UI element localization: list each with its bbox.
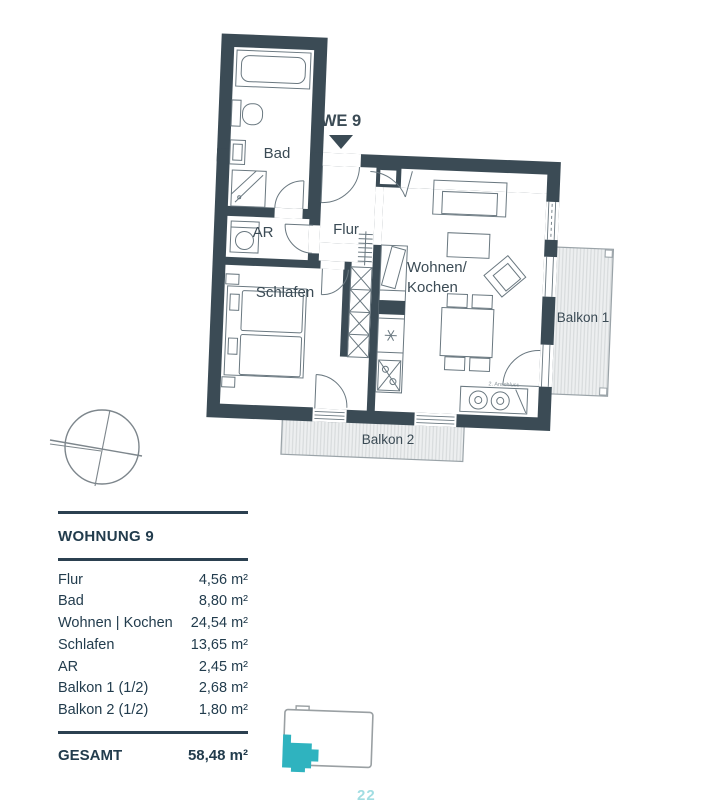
schlafen-door-opening [320,261,344,270]
entrance-arrow-icon [329,135,353,149]
row-value: 2,45 m² [199,657,248,679]
table-row: Balkon 1 (1/2) 2,68 m² [58,678,248,700]
row-value: 4,56 m² [199,570,248,592]
table-row: AR 2,45 m² [58,657,248,679]
label-wohnen-1: Wohnen/ [407,259,468,276]
entrance-opening [323,153,361,168]
row-value: 13,65 m² [191,635,248,657]
row-value: 1,80 m² [199,700,248,722]
floorplan-page: 2. Anschluss Bad AR Flur Schlafen Wohnen… [0,0,708,800]
page-number: 22 [357,787,376,804]
area-rows: Flur 4,56 m² Bad 8,80 m² Wohnen | Kochen… [58,570,248,723]
row-label: Balkon 1 (1/2) [58,678,148,700]
window-1-opening [545,202,560,240]
balcony1-door-opening [539,344,554,386]
row-label: Flur [58,570,83,592]
table-row: Schlafen 13,65 m² [58,635,248,657]
row-label: Schlafen [58,635,114,657]
key-plan [282,705,373,774]
table-row: Balkon 2 (1/2) 1,80 m² [58,700,248,722]
label-flur: Flur [333,221,359,238]
area-table: WOHNUNG 9 Flur 4,56 m² Bad 8,80 m² Wohne… [58,511,248,764]
row-label: Balkon 2 (1/2) [58,700,148,722]
north-compass-icon [50,410,142,486]
bad-door-opening [274,208,302,219]
table-rule-total [58,731,248,734]
label-balkon2: Balkon 2 [362,432,415,447]
label-ar: AR [253,224,274,241]
total-row: GESAMT 58,48 m² [58,747,248,764]
table-rule-header [58,558,248,561]
label-bad: Bad [264,145,291,162]
anschluss-label: 2. Anschluss [488,381,519,388]
row-label: Bad [58,591,84,613]
row-label: AR [58,657,78,679]
label-balkon1: Balkon 1 [557,310,610,325]
total-label: GESAMT [58,747,122,764]
row-value: 24,54 m² [191,613,248,635]
entrance-marker: WE 9 [321,112,361,149]
table-row: Bad 8,80 m² [58,591,248,613]
kitchen-block [379,300,406,315]
label-wohnen-2: Kochen [407,279,458,296]
table-title: WOHNUNG 9 [58,528,248,545]
row-value: 2,68 m² [199,678,248,700]
window-2-opening [542,257,557,297]
row-label: Wohnen | Kochen [58,613,173,635]
unit-label: WE 9 [321,112,361,130]
room-flur-south [313,355,369,410]
row-value: 8,80 m² [199,591,248,613]
ar-door-opening [308,225,320,253]
total-value: 58,48 m² [188,747,248,764]
table-row: Flur 4,56 m² [58,570,248,592]
plan-rotated-group: 2. Anschluss [205,33,621,467]
label-schlafen: Schlafen [256,284,314,301]
table-rule-top [58,511,248,514]
table-row: Wohnen | Kochen 24,54 m² [58,613,248,635]
